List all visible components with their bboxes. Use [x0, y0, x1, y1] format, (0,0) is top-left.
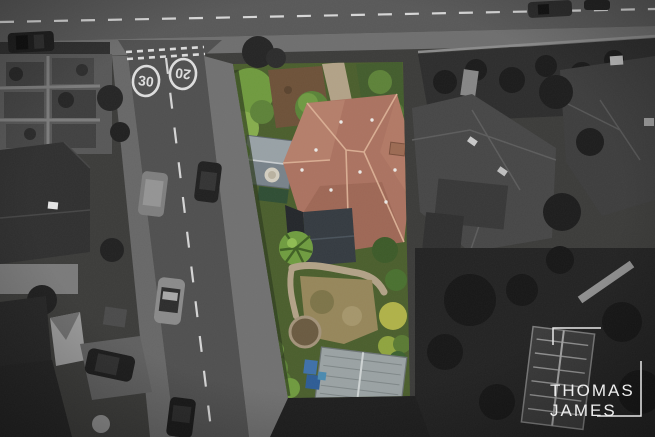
aerial-scene: 30 20	[0, 0, 655, 437]
logo-text-line1: THOMAS	[550, 381, 635, 400]
aerial-photo: 30 20	[0, 0, 655, 437]
logo-text-line2: JAMES	[550, 401, 617, 420]
vignette	[0, 0, 655, 437]
